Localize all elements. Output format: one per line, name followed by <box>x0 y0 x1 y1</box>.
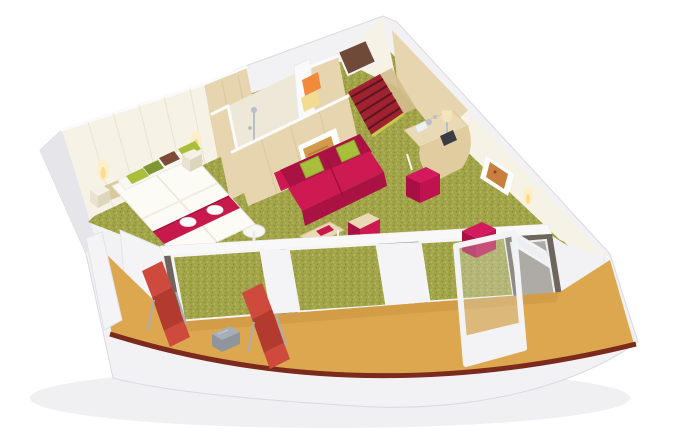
glass-panel <box>288 244 387 312</box>
shower-control <box>248 126 252 130</box>
wall-lamp-icon <box>101 167 106 179</box>
kettle-icon <box>426 119 432 125</box>
floorplan-svg <box>0 0 680 440</box>
folded-towel <box>180 218 196 227</box>
folded-towel <box>207 206 223 215</box>
desk-lamp-shade <box>441 110 453 122</box>
side-art-dot <box>494 171 497 174</box>
sconce-icon <box>526 194 530 204</box>
shower-head-icon <box>251 107 257 113</box>
cup-icon <box>433 115 437 119</box>
suite-3d-render <box>0 0 680 440</box>
